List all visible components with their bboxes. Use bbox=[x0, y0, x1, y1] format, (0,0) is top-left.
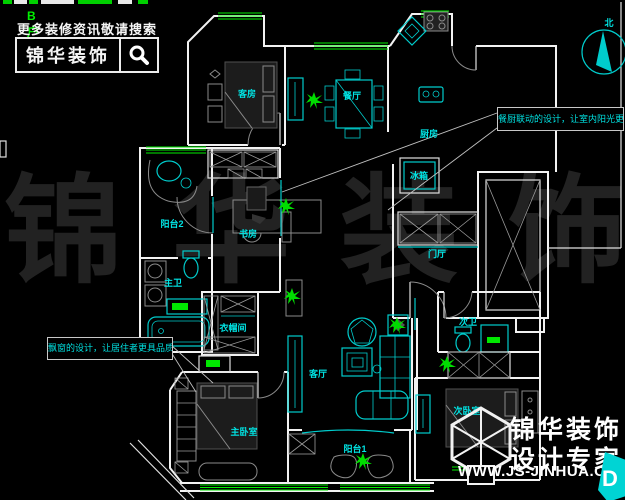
search-brand-text: 锦华装饰 bbox=[17, 39, 119, 71]
callout-left: 飘窗的设计，让居住者更具品质感 bbox=[47, 337, 173, 360]
elevator-shaft bbox=[486, 180, 540, 310]
room-label-balcony1: 阳台1 bbox=[343, 443, 366, 454]
room-second-bath bbox=[448, 325, 510, 378]
balcony-chair bbox=[331, 455, 357, 478]
top-fragment bbox=[14, 0, 27, 4]
kitchen-sink bbox=[398, 17, 426, 45]
company-logo[interactable]: 锦华装饰 设计专家 WWW.JS-JINHUA.COM D bbox=[450, 400, 625, 500]
plant-icon bbox=[355, 453, 372, 470]
search-button[interactable] bbox=[119, 39, 157, 71]
nightstand bbox=[208, 106, 222, 122]
top-fragment bbox=[78, 0, 112, 4]
room-balcony1 bbox=[289, 430, 394, 478]
sofa-second bbox=[356, 391, 408, 419]
room-label-kitchen: 厨房 bbox=[420, 128, 438, 139]
top-fragment bbox=[3, 0, 12, 4]
coffee-table bbox=[342, 348, 372, 376]
search-box[interactable]: 锦华装饰 bbox=[15, 37, 159, 73]
room-living bbox=[286, 280, 415, 419]
search-icon bbox=[128, 44, 150, 66]
counter-unit bbox=[419, 87, 443, 102]
room-kitchen bbox=[398, 12, 448, 193]
room-label-study: 书房 bbox=[239, 228, 257, 239]
top-fragment bbox=[29, 0, 38, 4]
room-label-guest: 客房 bbox=[237, 88, 256, 99]
callout-right: 餐厨联动的设计，让室内阳光更加充足 bbox=[497, 107, 624, 131]
room-label-master-bedroom: 主卧室 bbox=[230, 426, 257, 437]
floorplan-page: 锦华装饰 bbox=[0, 0, 625, 500]
top-fragment bbox=[118, 0, 132, 4]
promo-headline: 更多装修资讯敬请搜索 bbox=[17, 19, 157, 38]
computer bbox=[247, 187, 266, 210]
room-dining bbox=[288, 70, 383, 138]
room-label-living: 客厅 bbox=[308, 368, 327, 379]
room-foyer bbox=[398, 212, 478, 247]
callout-leaders bbox=[171, 113, 497, 392]
top-fragment bbox=[138, 0, 148, 4]
room-label-second-bath: 次卫 bbox=[459, 316, 477, 327]
tv-cabinet-dining bbox=[288, 78, 303, 120]
toilet-second bbox=[456, 334, 470, 352]
toilet-master bbox=[184, 258, 198, 278]
room-label-foyer: 门厅 bbox=[428, 248, 446, 259]
room-master-bath bbox=[145, 251, 209, 346]
north-label: 北 bbox=[604, 17, 613, 28]
balcony-chair bbox=[367, 455, 393, 478]
plant-icon bbox=[284, 288, 301, 305]
nightstand bbox=[208, 84, 222, 100]
room-study bbox=[208, 150, 321, 242]
north-arrow-icon: 北 bbox=[582, 17, 625, 74]
room-label-master-bath: 主卫 bbox=[164, 277, 182, 288]
top-fragment bbox=[41, 0, 74, 4]
laundry-sink bbox=[157, 161, 181, 181]
bench bbox=[199, 463, 257, 480]
plants bbox=[278, 92, 456, 470]
compass-d-icon: D bbox=[592, 450, 625, 500]
plant-icon bbox=[306, 92, 323, 109]
room-label-balcony2: 阳台2 bbox=[160, 218, 183, 229]
compass-letter: D bbox=[602, 466, 618, 491]
room-label-dining: 餐厅 bbox=[342, 90, 361, 101]
label-fridge: 冰箱 bbox=[410, 170, 428, 181]
wardrobe-master bbox=[177, 391, 196, 461]
room-label-closet: 衣帽间 bbox=[219, 322, 246, 333]
